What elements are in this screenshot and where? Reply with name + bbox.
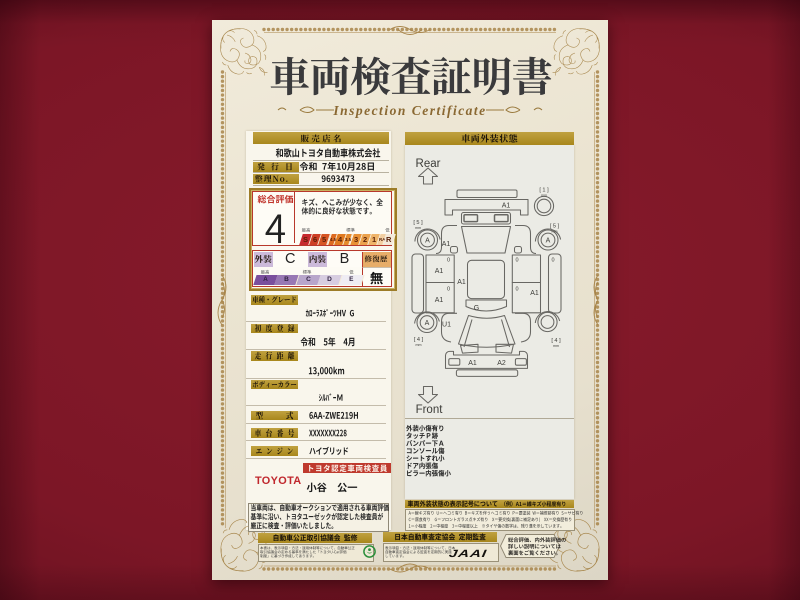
svg-text:A1: A1 <box>502 203 511 210</box>
svg-text:A1: A1 <box>435 297 444 304</box>
svg-text:Rear: Rear <box>416 158 441 170</box>
svg-text:A1: A1 <box>468 360 477 367</box>
svg-text:Front: Front <box>416 404 444 416</box>
svg-text:0: 0 <box>551 258 554 264</box>
svg-text:A1: A1 <box>442 241 451 248</box>
svg-text:A: A <box>425 238 430 245</box>
svg-text:A1: A1 <box>530 290 539 297</box>
svg-text:G: G <box>474 305 479 312</box>
svg-text:A2: A2 <box>497 360 506 367</box>
svg-text:0: 0 <box>447 287 450 293</box>
svg-text:A: A <box>546 238 551 245</box>
svg-text:mm: mm <box>552 230 558 234</box>
svg-text:0: 0 <box>515 258 518 264</box>
svg-text:A1: A1 <box>457 279 466 286</box>
svg-text:0: 0 <box>447 258 450 264</box>
svg-text:A: A <box>425 320 430 327</box>
svg-text:mm: mm <box>541 194 547 198</box>
svg-text:mm: mm <box>553 344 559 348</box>
svg-text:U1: U1 <box>442 322 451 329</box>
svg-text:mm: mm <box>416 343 422 347</box>
svg-text:A1: A1 <box>435 268 444 275</box>
svg-text:mm: mm <box>415 226 421 230</box>
svg-text:0: 0 <box>515 287 518 293</box>
